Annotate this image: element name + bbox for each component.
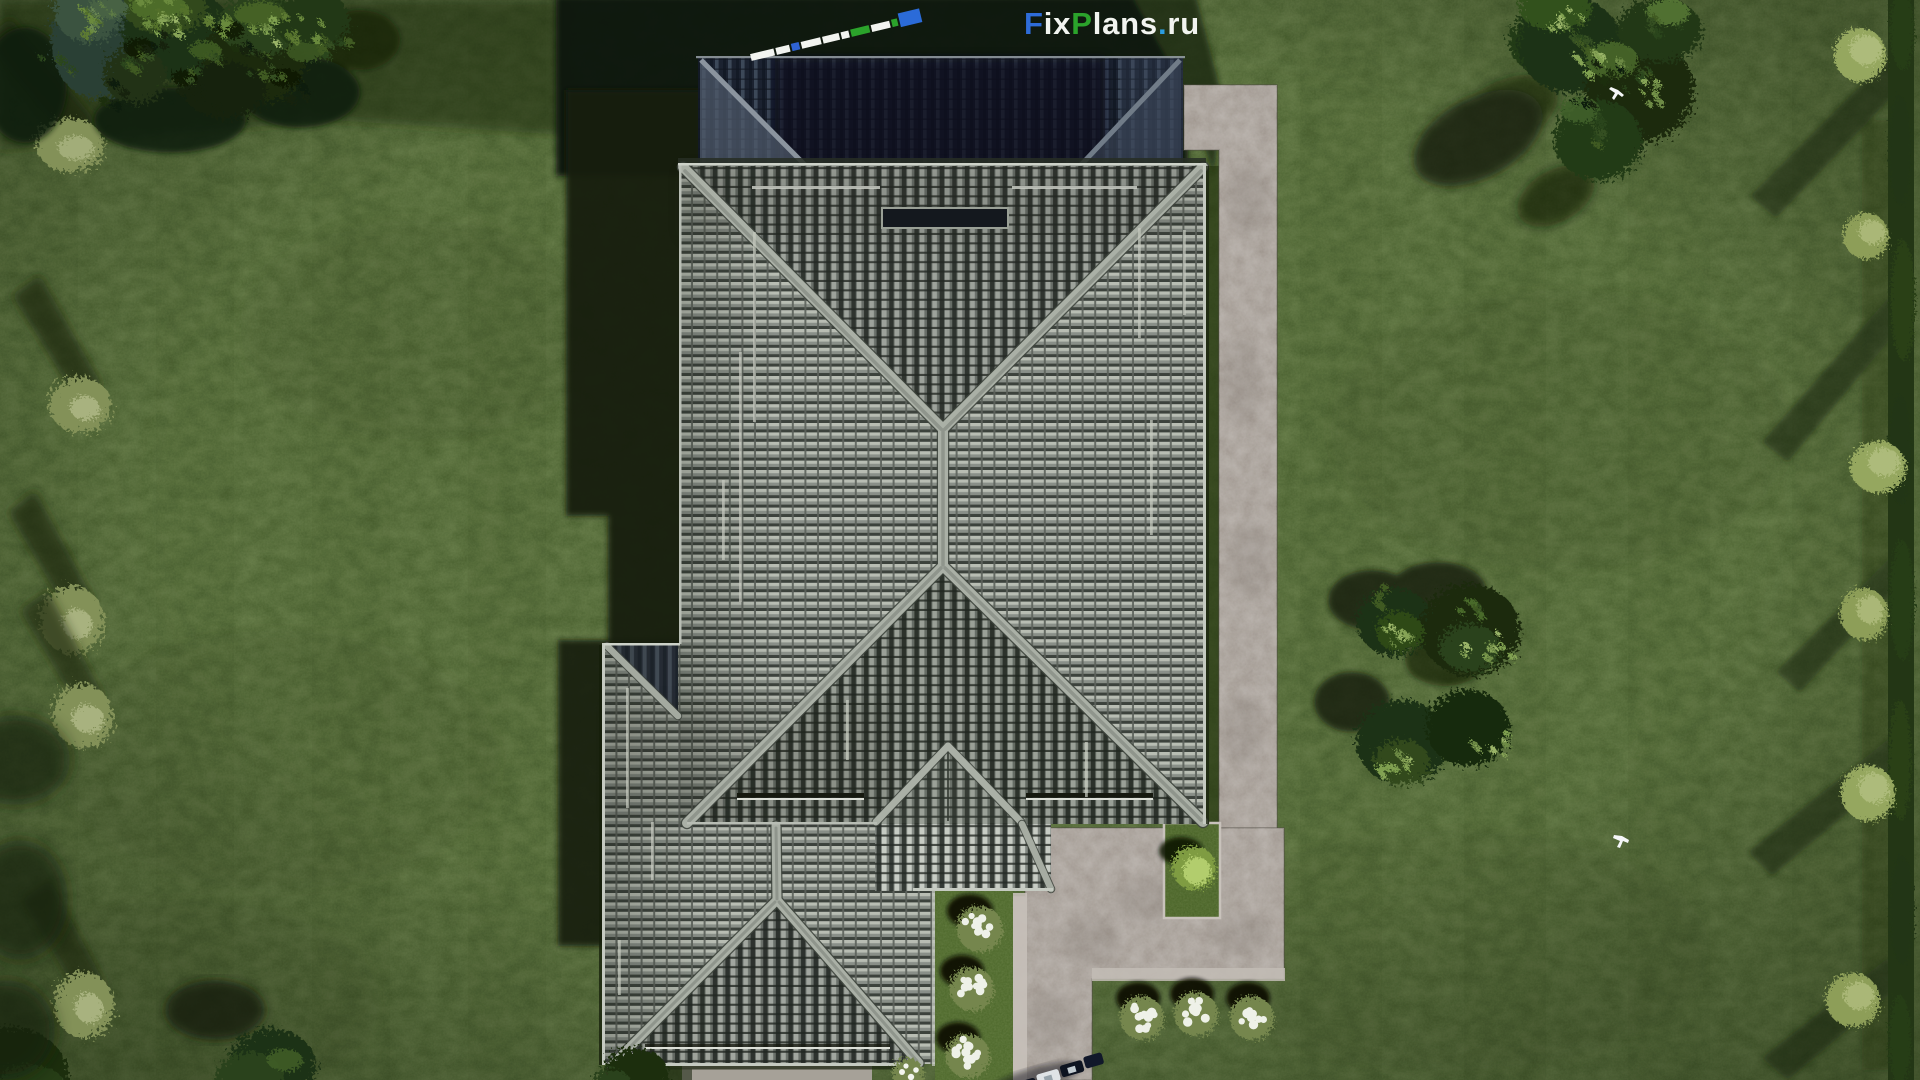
- svg-text:FixPlans.ru: FixPlans.ru: [1024, 6, 1200, 41]
